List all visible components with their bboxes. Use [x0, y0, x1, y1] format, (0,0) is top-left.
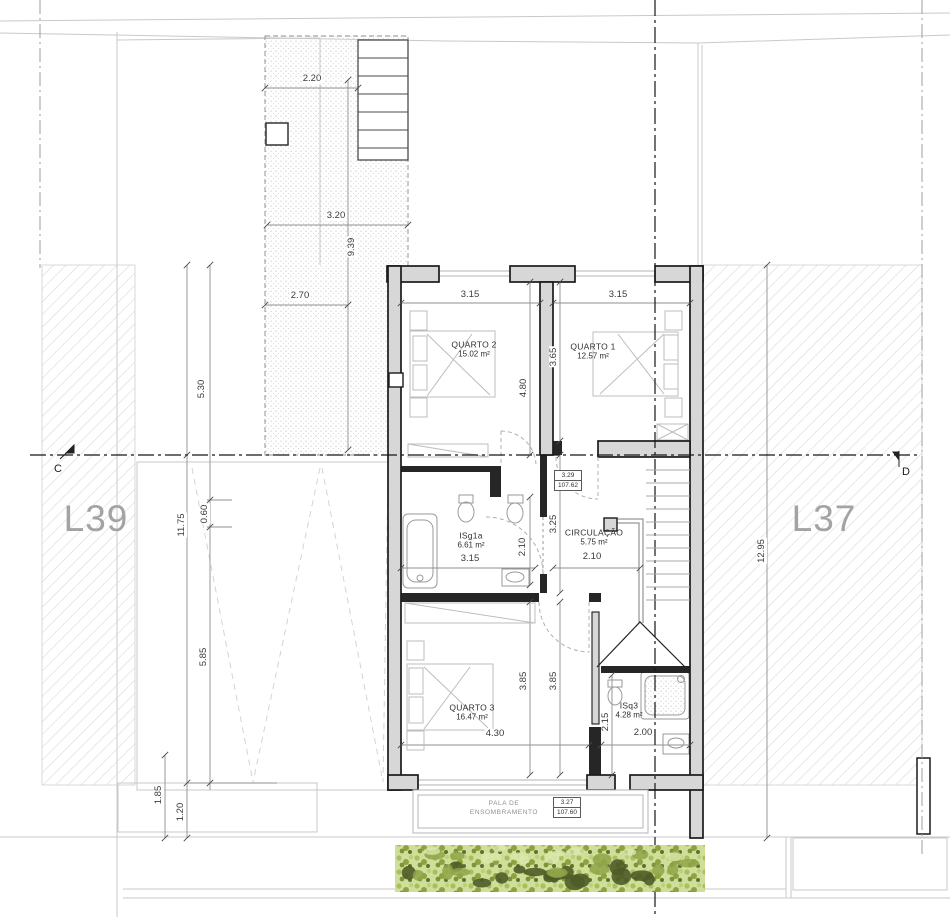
dim-bath1-width: 3.15	[460, 554, 481, 564]
dim-circ-height: 3.25	[549, 514, 559, 535]
room-label-quarto3: QUARTO 3 16.47 m²	[449, 703, 494, 722]
dim-sidewalk-a: 1.85	[154, 785, 164, 806]
dim-quarto3-width: 4.30	[485, 729, 506, 739]
dim-courtyard-height: 9.39	[347, 237, 357, 258]
dim-left-offset: 0.60	[200, 504, 210, 525]
dim-left-upper: 5.30	[197, 379, 207, 400]
dim-quarto2-width: 3.15	[460, 290, 481, 300]
dim-quarto2-depth: 4.80	[519, 378, 529, 399]
courtyard	[265, 36, 408, 455]
dim-courtyard-top: 2.20	[302, 74, 323, 84]
dim-circ-width: 2.10	[582, 552, 603, 562]
section-marker-d: D	[902, 466, 910, 478]
dim-left-total: 11.75	[177, 512, 187, 537]
section-marker-c: C	[54, 463, 62, 475]
lot-label-l39: L39	[64, 498, 129, 540]
level-marker-upper: 3.29 107.62	[554, 470, 582, 491]
dim-bath1-depth: 2.10	[518, 537, 528, 558]
pala-label: PALA DE ENSOMBRAMENTO	[470, 799, 538, 817]
dim-courtyard-low: 2.70	[290, 291, 311, 301]
shower-isq3	[641, 672, 689, 719]
courtyard-box	[266, 123, 288, 145]
lot-label-l37: L37	[792, 498, 857, 540]
dim-courtyard-mid: 3.20	[326, 211, 347, 221]
neighbor-wall	[917, 758, 930, 834]
dim-quarto3-depth-b: 3.85	[549, 671, 559, 692]
dim-sidewalk-b: 1.20	[176, 802, 186, 823]
dim-quarto1-depth: 3.65	[549, 347, 559, 368]
roof-slope-lines	[192, 468, 388, 782]
floor-plan: 2.20 3.20 9.39 2.70 3.15 3.15 4.80 3.65 …	[0, 0, 950, 917]
dim-right-depth: 12.95	[757, 538, 767, 564]
room-label-quarto1: QUARTO 1 12.57 m²	[570, 342, 615, 361]
room-label-isq3: ISq3 4.28 m²	[615, 701, 642, 720]
dim-bath3-width: 2.00	[633, 728, 654, 738]
dim-left-lower: 5.85	[199, 647, 209, 668]
sliding-door-isq3	[592, 612, 599, 724]
plan-linework	[0, 0, 950, 917]
room-label-isg1a: ISg1a 6.61 m²	[457, 531, 484, 550]
room-label-circulacao: CIRCULAÇÃO 5.75 m²	[565, 528, 623, 547]
wall-vent-box	[389, 373, 403, 387]
room-label-quarto2: QUARTO 2 15.02 m²	[451, 340, 496, 359]
hedge	[395, 845, 705, 892]
level-marker-lower: 3.27 107.60	[553, 797, 581, 818]
dim-bath3-depth: 2.15	[601, 712, 611, 733]
dim-quarto3-depth-a: 3.85	[519, 671, 529, 692]
dim-quarto1-width: 3.15	[608, 290, 629, 300]
